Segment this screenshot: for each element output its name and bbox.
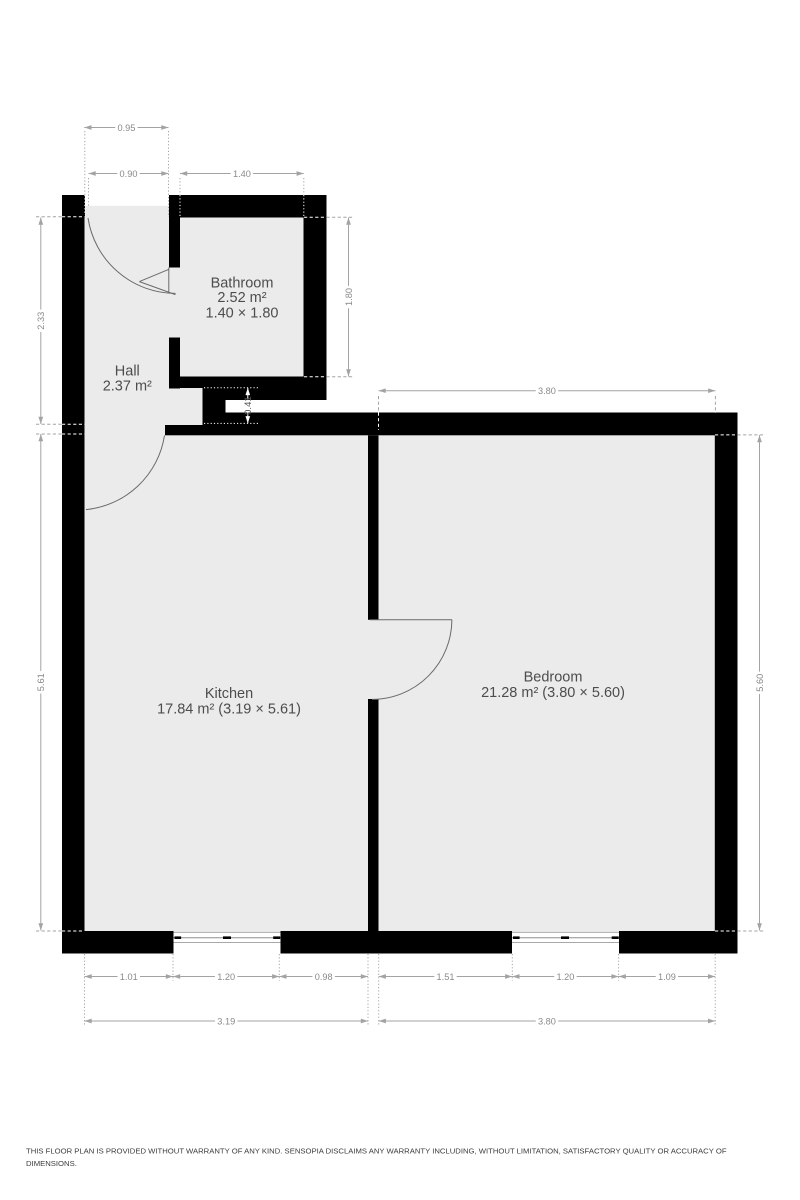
svg-text:0.95: 0.95	[117, 123, 135, 133]
svg-text:1.40: 1.40	[233, 169, 251, 179]
svg-text:1.20: 1.20	[217, 972, 235, 982]
svg-text:1.09: 1.09	[658, 972, 676, 982]
svg-text:21.28 m² (3.80 × 5.60): 21.28 m² (3.80 × 5.60)	[481, 685, 625, 701]
svg-text:2.33: 2.33	[36, 312, 46, 330]
svg-text:0.41: 0.41	[243, 396, 254, 415]
svg-text:0.98: 0.98	[315, 972, 333, 982]
svg-text:2.37 m²: 2.37 m²	[103, 379, 152, 395]
svg-text:Kitchen: Kitchen	[205, 686, 253, 702]
svg-text:THIS FLOOR PLAN IS PROVIDED WI: THIS FLOOR PLAN IS PROVIDED WITHOUT WARR…	[26, 1147, 727, 1156]
svg-text:Bedroom: Bedroom	[524, 669, 583, 685]
svg-text:3.19: 3.19	[217, 1016, 235, 1026]
svg-text:3.80: 3.80	[538, 1016, 556, 1026]
svg-text:1.20: 1.20	[557, 972, 575, 982]
svg-text:Hall: Hall	[115, 364, 140, 380]
svg-text:2.52 m²: 2.52 m²	[217, 290, 266, 306]
svg-text:1.40 × 1.80: 1.40 × 1.80	[206, 306, 279, 322]
svg-text:1.01: 1.01	[120, 972, 138, 982]
svg-text:5.60: 5.60	[755, 674, 765, 692]
svg-text:0.90: 0.90	[120, 169, 138, 179]
svg-text:DIMENSIONS.: DIMENSIONS.	[26, 1159, 77, 1168]
svg-text:3.80: 3.80	[538, 386, 556, 396]
svg-text:17.84 m² (3.19 × 5.61): 17.84 m² (3.19 × 5.61)	[157, 702, 301, 718]
svg-text:1.51: 1.51	[437, 972, 455, 982]
svg-text:5.61: 5.61	[36, 673, 46, 691]
svg-text:1.80: 1.80	[344, 288, 354, 306]
